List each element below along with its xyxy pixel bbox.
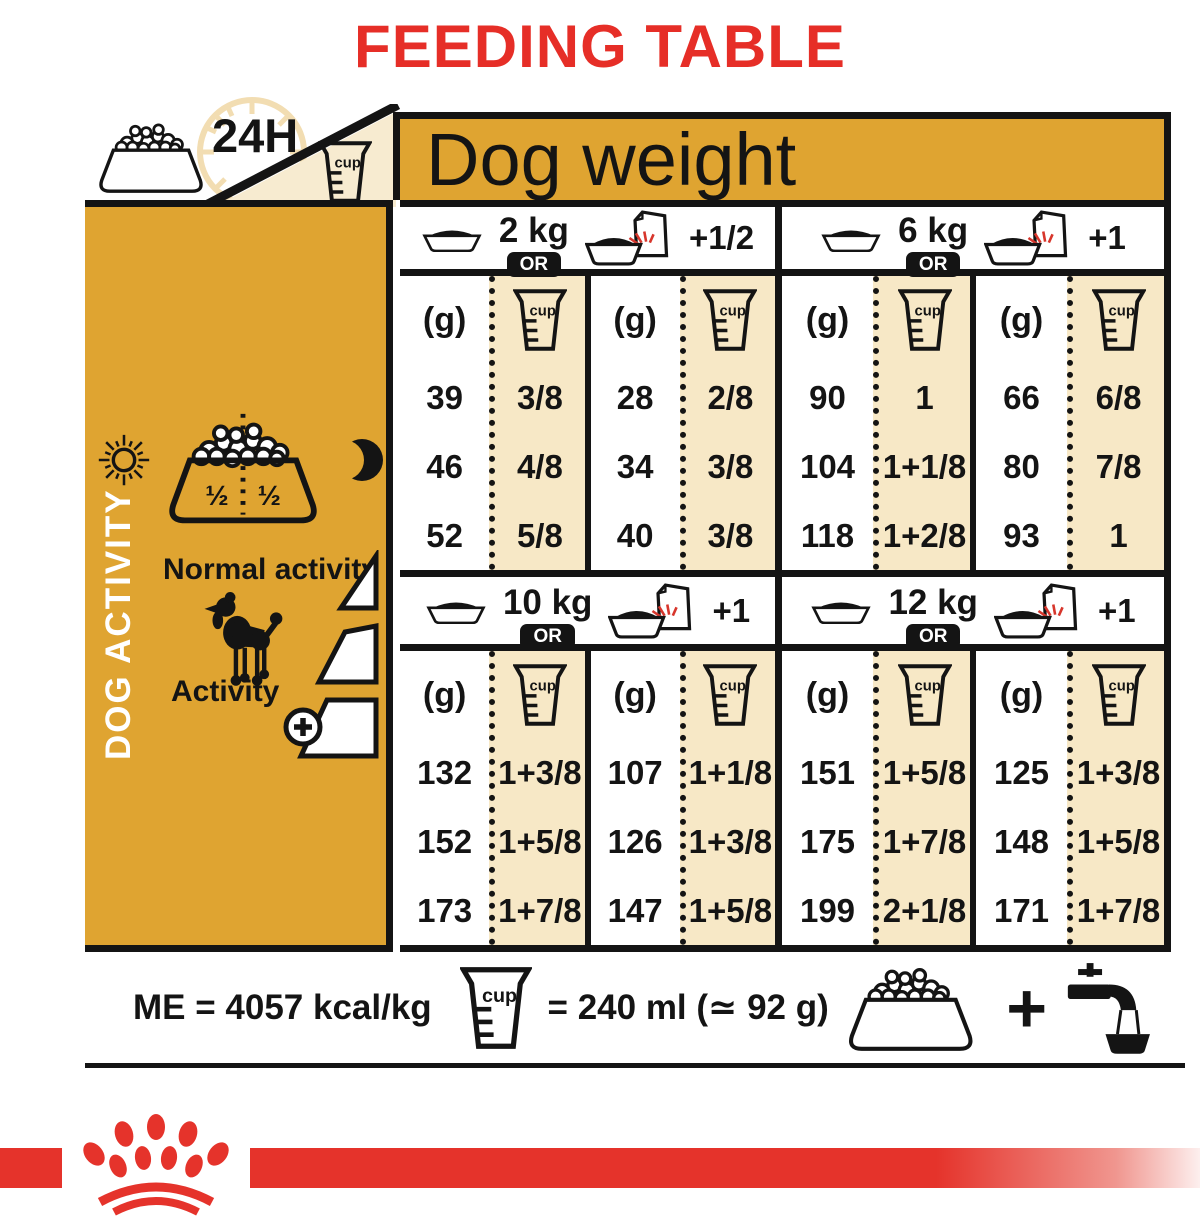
cup-label: cup <box>914 679 940 695</box>
cup-column: cup 1+5/8 1+7/8 2+1/8 <box>873 651 970 945</box>
bowl-icon <box>425 597 487 624</box>
group-data-12kg: (g) 151 175 199 cup 1+5/8 1+7/8 2+1/8 <box>782 651 1164 945</box>
grams-value: 171 <box>994 892 1049 930</box>
bowl-and-pouch-icon <box>585 209 673 267</box>
footer-info-strip: ME = 4057 kcal/kg cup = 240 ml (≃ 92 g) … <box>85 952 1185 1068</box>
kibble-bowl-icon <box>86 114 216 200</box>
group-data-6kg: (g) 90 104 118 cup 1 1+1/8 1+2/8 <box>782 276 1164 577</box>
cup-icon: cup <box>513 663 567 727</box>
bowl-icon <box>820 225 882 252</box>
weight-label: 6 kg <box>898 213 968 248</box>
bowl-and-pouch-icon <box>984 209 1072 267</box>
cup-value: 1+1/8 <box>689 754 773 792</box>
extra-portion-label: +1 <box>1098 592 1136 630</box>
portion-pane: (g) 39 46 52 cup 3/8 4/8 5/8 <box>400 276 585 570</box>
cup-label: cup <box>482 985 517 1007</box>
weight-label: 12 kg <box>888 585 978 620</box>
group-header-10kg: 10 kg OR +1 <box>400 577 782 651</box>
dog-activity-sidebar: ½ ½ DOG ACTIVITY Normal activity <box>85 200 393 952</box>
extra-portion-label: +1 <box>1088 219 1126 257</box>
portion-pane: (g) 132 152 173 cup 1+3/8 1+5/8 1+7/8 <box>400 651 585 945</box>
portion-pane: (g) 125 148 171 cup 1+3/8 1+5/8 1+7/8 <box>970 651 1164 945</box>
grams-header: (g) <box>806 676 849 715</box>
cup-label: cup <box>529 304 555 320</box>
grams-header: (g) <box>613 301 656 340</box>
grams-value: 147 <box>608 892 663 930</box>
cup-value: 2+1/8 <box>883 892 967 930</box>
cup-label: cup <box>529 679 555 695</box>
dog-activity-vertical-label: DOG ACTIVITY <box>95 535 143 760</box>
activity-label: Activity <box>171 675 279 709</box>
cup-value: 6/8 <box>1096 379 1142 417</box>
cup-label: cup <box>720 679 746 695</box>
cup-value: 1+3/8 <box>498 754 582 792</box>
kibble-bowl-icon <box>829 959 992 1057</box>
cup-column: cup 3/8 4/8 5/8 <box>489 276 584 570</box>
cup-value: 1+7/8 <box>498 892 582 930</box>
cup-label: cup <box>1108 304 1134 320</box>
grams-value: 28 <box>617 379 654 417</box>
cup-value: 3/8 <box>707 517 753 555</box>
cup-label: cup <box>1108 679 1134 695</box>
cup-value: 1+5/8 <box>1077 823 1161 861</box>
group-header-2kg: 2 kg OR +1/2 <box>400 207 782 276</box>
grams-value: 34 <box>617 448 654 486</box>
cup-value: 1 <box>1109 517 1127 555</box>
cup-value: 1+2/8 <box>883 517 967 555</box>
cup-value: 1+1/8 <box>883 448 967 486</box>
cup-column: cup 1+3/8 1+5/8 1+7/8 <box>1067 651 1164 945</box>
portion-pane: (g) 107 126 147 cup 1+1/8 1+3/8 1+5/8 <box>585 651 776 945</box>
cup-value: 3/8 <box>707 448 753 486</box>
me-kcal-label: ME = 4057 kcal/kg <box>133 988 432 1028</box>
royal-canin-crown-logo <box>72 1110 240 1216</box>
portion-pane: (g) 66 80 93 cup 6/8 7/8 1 <box>970 276 1164 570</box>
cup-value: 1+7/8 <box>1077 892 1161 930</box>
extra-portion-label: +1/2 <box>689 219 754 257</box>
grams-value: 148 <box>994 823 1049 861</box>
grams-value: 104 <box>800 448 855 486</box>
cup-value: 1 <box>915 379 933 417</box>
cup-label: cup <box>335 156 361 172</box>
feeding-data-grid: 2 kg OR +1/2 6 kg OR <box>400 200 1171 952</box>
half-right-label: ½ <box>258 480 281 511</box>
or-badge: OR <box>520 624 575 650</box>
cup-value: 5/8 <box>517 517 563 555</box>
grams-value: 39 <box>426 379 463 417</box>
grams-header: (g) <box>806 301 849 340</box>
cup-icon: cup <box>703 288 757 352</box>
faucet-water-icon <box>1061 956 1151 1060</box>
grams-header: (g) <box>1000 301 1043 340</box>
cup-icon: cup <box>1092 288 1146 352</box>
cup-value: 2/8 <box>707 379 753 417</box>
moon-icon <box>337 433 383 487</box>
grams-column: (g) 125 148 171 <box>976 651 1067 945</box>
portion-pane: (g) 28 34 40 cup 2/8 3/8 3/8 <box>585 276 776 570</box>
cup-value: 1+7/8 <box>883 823 967 861</box>
cup-icon: cup <box>703 663 757 727</box>
grams-column: (g) 28 34 40 <box>591 276 680 570</box>
cup-label: cup <box>720 304 746 320</box>
weight-label: 2 kg <box>499 213 569 248</box>
bowl-icon <box>421 225 483 252</box>
cup-column: cup 1+1/8 1+3/8 1+5/8 <box>680 651 775 945</box>
grams-value: 107 <box>608 754 663 792</box>
grams-value: 152 <box>417 823 472 861</box>
cup-value: 1+5/8 <box>498 823 582 861</box>
cup-value: 1+5/8 <box>883 754 967 792</box>
cup-icon: cup <box>1092 663 1146 727</box>
weight-label: 10 kg <box>503 585 593 620</box>
split-meal-bowl-icon: ½ ½ <box>151 410 335 532</box>
grams-column: (g) 132 152 173 <box>400 651 489 945</box>
feeding-table-infographic: FEEDING TABLE 24H cup Dog weight <box>0 0 1200 1220</box>
grams-header: (g) <box>1000 676 1043 715</box>
cup-icon: cup <box>898 288 952 352</box>
cup-label: cup <box>914 304 940 320</box>
grams-value: 93 <box>1003 517 1040 555</box>
grams-value: 66 <box>1003 379 1040 417</box>
cup-icon: cup <box>460 961 532 1055</box>
cup-icon: cup <box>513 288 567 352</box>
half-left-label: ½ <box>205 480 228 511</box>
cup-icon: cup <box>898 663 952 727</box>
grams-header: (g) <box>613 676 656 715</box>
cup-value: 7/8 <box>1096 448 1142 486</box>
grams-value: 132 <box>417 754 472 792</box>
bowl-icon <box>810 597 872 624</box>
grams-value: 46 <box>426 448 463 486</box>
cup-value: 1+5/8 <box>689 892 773 930</box>
plus-sign: + <box>1006 973 1047 1043</box>
or-badge: OR <box>906 252 961 278</box>
grams-value: 173 <box>417 892 472 930</box>
or-badge: OR <box>507 252 562 278</box>
grams-value: 199 <box>800 892 855 930</box>
cup-column: cup 2/8 3/8 3/8 <box>680 276 775 570</box>
grams-value: 151 <box>800 754 855 792</box>
grams-column: (g) 90 104 118 <box>782 276 873 570</box>
cup-value: 3/8 <box>517 379 563 417</box>
cup-column: cup 1 1+1/8 1+2/8 <box>873 276 970 570</box>
dog-weight-header: Dog weight <box>393 112 1171 200</box>
grams-value: 52 <box>426 517 463 555</box>
plus-circle-icon <box>286 710 320 744</box>
dog-weight-title: Dog weight <box>400 117 796 202</box>
portion-pane: (g) 151 175 199 cup 1+5/8 1+7/8 2+1/8 <box>782 651 970 945</box>
or-badge: OR <box>906 624 961 650</box>
grams-column: (g) 66 80 93 <box>976 276 1067 570</box>
grams-value: 40 <box>617 517 654 555</box>
grams-value: 175 <box>800 823 855 861</box>
grams-column: (g) 151 175 199 <box>782 651 873 945</box>
page-title: FEEDING TABLE <box>0 12 1200 81</box>
grams-header: (g) <box>423 301 466 340</box>
cup-value: 1+3/8 <box>689 823 773 861</box>
grams-value: 126 <box>608 823 663 861</box>
extra-portion-label: +1 <box>712 592 750 630</box>
cup-column: cup 1+3/8 1+5/8 1+7/8 <box>489 651 584 945</box>
grams-value: 90 <box>809 379 846 417</box>
portion-pane: (g) 90 104 118 cup 1 1+1/8 1+2/8 <box>782 276 970 570</box>
group-header-12kg: 12 kg OR +1 <box>782 577 1164 651</box>
group-data-10kg: (g) 132 152 173 cup 1+3/8 1+5/8 1+7/8 <box>400 651 782 945</box>
grams-value: 118 <box>801 517 854 555</box>
grams-column: (g) 107 126 147 <box>591 651 680 945</box>
grams-header: (g) <box>423 676 466 715</box>
cup-icon: cup <box>318 140 372 204</box>
grams-value: 80 <box>1003 448 1040 486</box>
bowl-and-pouch-icon <box>608 582 696 640</box>
cup-value: 4/8 <box>517 448 563 486</box>
activity-level-triangles-icon <box>281 550 381 764</box>
cup-value: 1+3/8 <box>1077 754 1161 792</box>
bowl-and-pouch-icon <box>994 582 1082 640</box>
grams-column: (g) 39 46 52 <box>400 276 489 570</box>
cup-volume-label: = 240 ml (≃ 92 g) <box>548 988 829 1028</box>
cup-column: cup 6/8 7/8 1 <box>1067 276 1164 570</box>
group-header-6kg: 6 kg OR +1 <box>782 207 1164 276</box>
grams-value: 125 <box>994 754 1049 792</box>
group-data-2kg: (g) 39 46 52 cup 3/8 4/8 5/8 <box>400 276 782 577</box>
sun-icon <box>93 429 155 491</box>
